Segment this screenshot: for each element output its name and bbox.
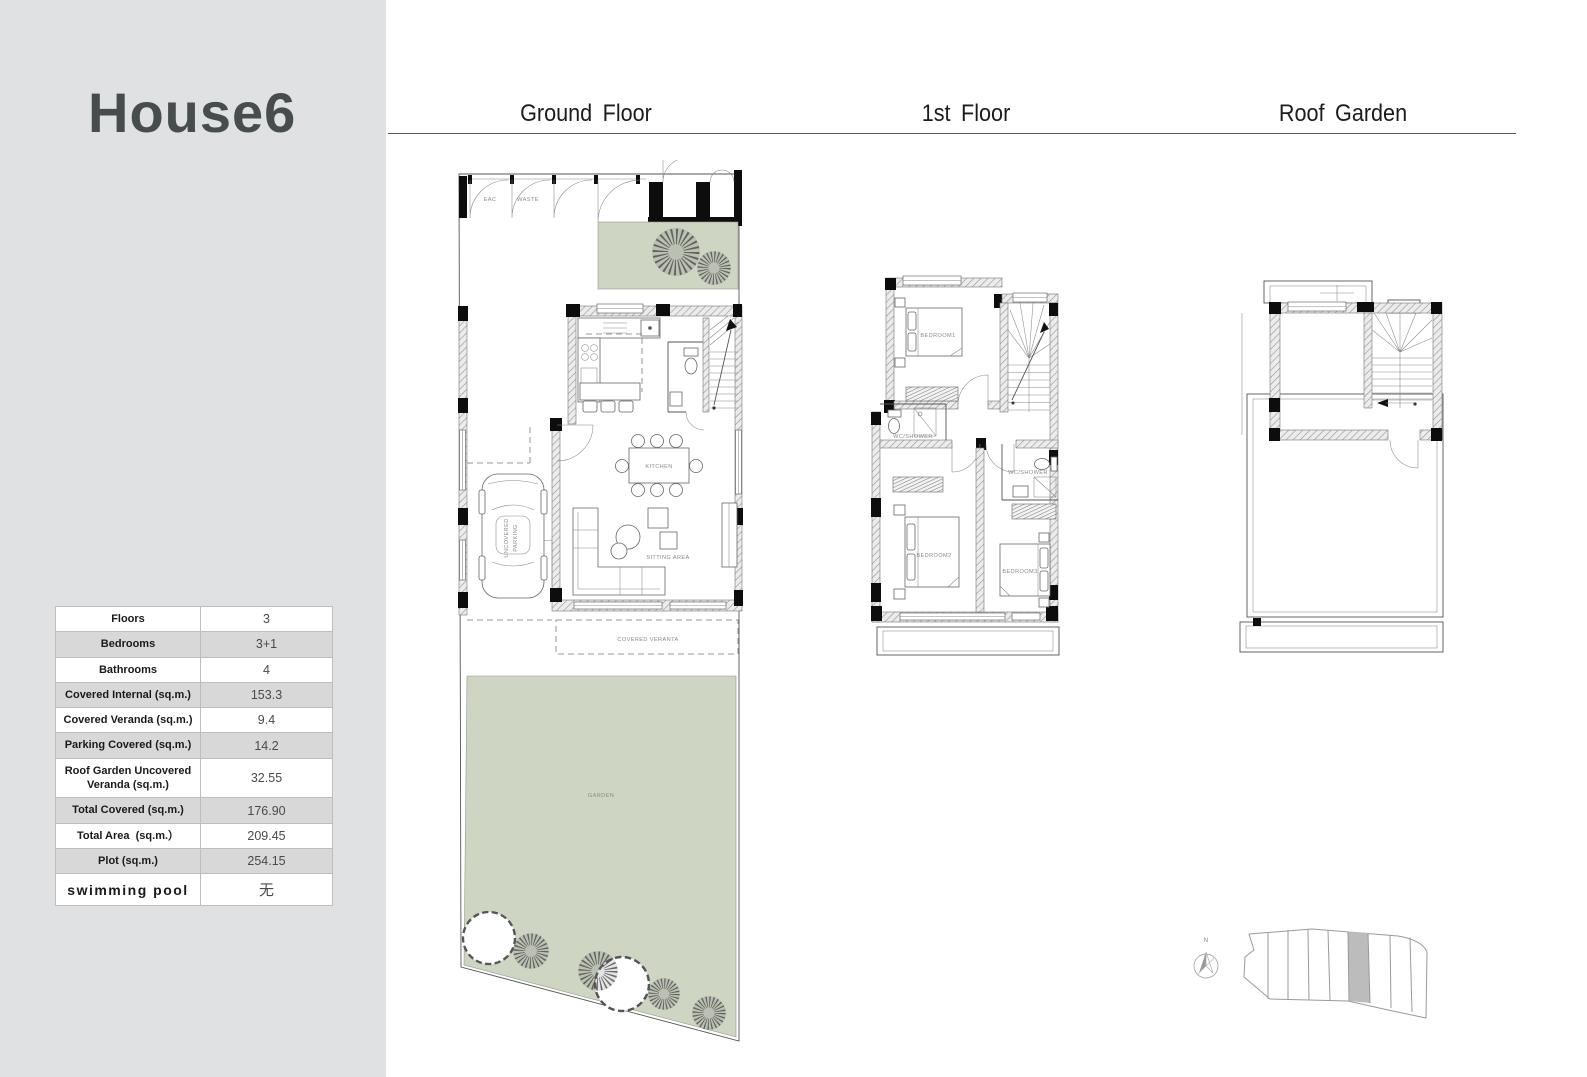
bush-icon [513, 933, 549, 969]
parking-label-2: PARKING [513, 524, 519, 552]
roof-garden-plan [1230, 270, 1450, 660]
page-title: House6 [88, 80, 296, 145]
first-floor-plan: BEDROOM1 WC/SHOWER WC/SHOWER [865, 265, 1075, 665]
spec-value: 3 [201, 607, 333, 632]
table-row: Roof Garden Uncovered Veranda (sq.m.) 32… [56, 758, 333, 798]
entry-garden-patch [598, 222, 738, 289]
spec-value: 14.2 [201, 733, 333, 758]
spec-value: 4 [201, 657, 333, 682]
highlighted-plot [1348, 932, 1370, 1004]
utility-closets: EAC WASTE [470, 180, 640, 222]
parking-label-1: UNCOVERED [504, 518, 510, 557]
table-row: Total Area (sq.m.） 209.45 [56, 823, 333, 848]
spec-label: Parking Covered (sq.m.) [56, 733, 201, 758]
balcony-roof [1240, 618, 1443, 652]
balcony-first [877, 627, 1059, 655]
north-label: N [1203, 937, 1208, 944]
site-plan: N [1185, 905, 1445, 1055]
house-spec-sheet: House6 Floors 3 Bedrooms 3+1 Bathrooms 4… [0, 0, 1587, 1077]
spec-value: 9.4 [201, 708, 333, 733]
stairs-ground [710, 316, 738, 410]
table-row: Plot (sq.m.) 254.15 [56, 848, 333, 873]
table-row: swimming pool 无 [56, 874, 333, 906]
kitchen-label: KITCHEN [645, 464, 672, 470]
bedroom2-label: BEDROOM2 [916, 553, 951, 559]
specs-table: Floors 3 Bedrooms 3+1 Bathrooms 4 Covere… [55, 606, 333, 906]
spec-value: 153.3 [201, 682, 333, 707]
entrance-walls [648, 160, 742, 226]
table-row: Covered Veranda (sq.m.) 9.4 [56, 708, 333, 733]
garden-label: GARDEN [588, 793, 614, 799]
compass: N [1194, 937, 1218, 978]
bush-icon [648, 978, 680, 1010]
spec-label: Total Covered (sq.m.) [56, 798, 201, 823]
header-ground-floor: Ground Floor [520, 100, 652, 128]
bush-icon [652, 228, 700, 276]
table-row: Covered Internal (sq.m.) 153.3 [56, 682, 333, 707]
wc-ground [668, 318, 709, 430]
bedroom3: BEDROOM3 [1000, 533, 1050, 607]
wc-right-label: WC/SHOWER [1008, 470, 1048, 476]
spec-label: Bathrooms [56, 657, 201, 682]
plots-outline [1244, 929, 1427, 1018]
bush-icon [692, 996, 726, 1030]
covered-veranda: COVERED VERANTA [556, 620, 738, 654]
waste-label: WASTE [517, 197, 539, 203]
sidebar: House6 Floors 3 Bedrooms 3+1 Bathrooms 4… [0, 0, 386, 1077]
table-row: Floors 3 [56, 607, 333, 632]
bush-icon [578, 951, 618, 991]
bedroom2: BEDROOM2 [894, 505, 959, 599]
spec-label: Floors [56, 607, 201, 632]
header-divider [388, 133, 1516, 134]
spec-label: Covered Veranda (sq.m.) [56, 708, 201, 733]
car-icon: UNCOVERED PARKING [479, 474, 547, 598]
eac-label: EAC [484, 197, 497, 203]
spec-label: Total Area (sq.m.） [56, 823, 201, 848]
header-roof-garden: Roof Garden [1279, 100, 1407, 128]
kitchen-counters [578, 318, 660, 412]
spec-value: 无 [201, 874, 333, 906]
spec-value: 209.45 [201, 823, 333, 848]
bush-icon [697, 251, 731, 285]
spec-label: Bedrooms [56, 632, 201, 657]
ground-floor-plan: EAC WASTE [445, 160, 755, 1060]
table-row: Parking Covered (sq.m.) 14.2 [56, 733, 333, 758]
table-row: Bedrooms 3+1 [56, 632, 333, 657]
tree-icon [463, 912, 515, 964]
bedroom3-label: BEDROOM3 [1002, 569, 1037, 575]
spec-value: 176.90 [201, 798, 333, 823]
spec-label: Covered Internal (sq.m.) [56, 682, 201, 707]
spec-value: 32.55 [201, 758, 333, 798]
header-first-floor: 1st Floor [922, 100, 1011, 128]
bedroom1-label: BEDROOM1 [920, 333, 955, 339]
parking: UNCOVERED PARKING [467, 423, 552, 620]
wc-left-label: WC/SHOWER [893, 434, 933, 440]
spec-value: 254.15 [201, 848, 333, 873]
spec-label: Roof Garden Uncovered Veranda (sq.m.) [56, 758, 201, 798]
veranda-label: COVERED VERANTA [617, 637, 678, 643]
sitting-area-label: SITTING AREA [646, 555, 689, 561]
spec-label: swimming pool [56, 874, 201, 906]
stair-enclosure [1269, 302, 1442, 468]
dining-table: KITCHEN [616, 435, 703, 497]
spec-label: Plot (sq.m.) [56, 848, 201, 873]
spec-value: 3+1 [201, 632, 333, 657]
garden: GARDEN [463, 676, 736, 1037]
bedroom1: BEDROOM1 [895, 298, 962, 401]
table-row: Bathrooms 4 [56, 657, 333, 682]
table-row: Total Covered (sq.m.) 176.90 [56, 798, 333, 823]
stairs-first [1008, 303, 1050, 412]
